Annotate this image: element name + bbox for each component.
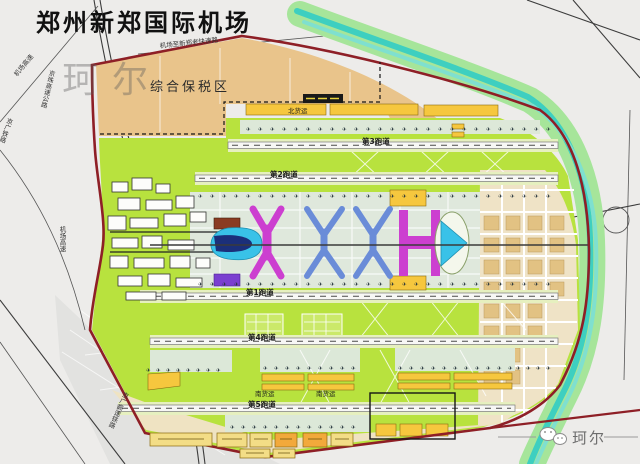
svg-text:✈: ✈ [176, 367, 181, 374]
svg-text:✈: ✈ [498, 193, 503, 200]
svg-text:✈: ✈ [453, 365, 458, 372]
svg-text:✈: ✈ [234, 281, 239, 288]
svg-text:✈: ✈ [274, 365, 279, 372]
svg-text:✈: ✈ [426, 126, 431, 133]
svg-text:✈: ✈ [486, 193, 491, 200]
svg-text:✈: ✈ [210, 281, 215, 288]
svg-text:✈: ✈ [450, 193, 455, 200]
svg-text:✈: ✈ [475, 365, 480, 372]
north-cargo-label: 北货运 [288, 106, 308, 115]
svg-text:✈: ✈ [318, 126, 323, 133]
airport-master-plan-map: 郑州新郑国际机场 珂尔 综合保税区 北货运 第3跑道 第2跑道 第1跑道 第4跑… [0, 0, 640, 464]
svg-text:✈: ✈ [241, 424, 246, 431]
svg-text:✈: ✈ [474, 193, 479, 200]
svg-text:✈: ✈ [486, 365, 491, 372]
svg-text:✈: ✈ [196, 367, 201, 374]
svg-text:✈: ✈ [216, 367, 221, 374]
svg-text:✈: ✈ [296, 365, 301, 372]
runway4-label: 第4跑道 [248, 332, 276, 342]
svg-text:✈: ✈ [306, 281, 311, 288]
svg-text:✈: ✈ [246, 126, 251, 133]
svg-text:✈: ✈ [329, 424, 334, 431]
svg-text:✈: ✈ [546, 281, 551, 288]
svg-text:✈: ✈ [340, 365, 345, 372]
svg-text:✈: ✈ [351, 365, 356, 372]
svg-text:✈: ✈ [486, 126, 491, 133]
south-cargo-label-1: 南货运 [255, 389, 275, 398]
svg-text:✈: ✈ [462, 281, 467, 288]
svg-text:✈: ✈ [351, 424, 356, 431]
svg-text:✈: ✈ [306, 193, 311, 200]
svg-text:✈: ✈ [510, 281, 515, 288]
svg-text:✈: ✈ [198, 281, 203, 288]
runway5-label: 第5跑道 [248, 399, 276, 409]
svg-text:✈: ✈ [296, 424, 301, 431]
svg-text:✈: ✈ [294, 126, 299, 133]
svg-text:✈: ✈ [402, 126, 407, 133]
svg-text:✈: ✈ [450, 126, 455, 133]
svg-text:✈: ✈ [409, 365, 414, 372]
runway-4 [150, 335, 558, 348]
airport-expwy-w-label: 机场高速 [58, 225, 66, 254]
bonded-zone-label: 综合保税区 [150, 80, 230, 95]
svg-text:✈: ✈ [426, 193, 431, 200]
svg-text:✈: ✈ [270, 193, 275, 200]
svg-text:✈: ✈ [522, 193, 527, 200]
svg-text:✈: ✈ [222, 193, 227, 200]
svg-text:✈: ✈ [546, 193, 551, 200]
svg-text:珂尔: 珂尔 [572, 429, 606, 447]
svg-text:✈: ✈ [534, 193, 539, 200]
svg-text:✈: ✈ [282, 193, 287, 200]
svg-text:✈: ✈ [294, 281, 299, 288]
svg-text:✈: ✈ [258, 281, 263, 288]
svg-text:✈: ✈ [222, 281, 227, 288]
svg-text:✈: ✈ [330, 126, 335, 133]
svg-text:✈: ✈ [340, 424, 345, 431]
svg-text:✈: ✈ [462, 126, 467, 133]
svg-text:✈: ✈ [166, 367, 171, 374]
svg-text:✈: ✈ [438, 193, 443, 200]
svg-text:✈: ✈ [282, 281, 287, 288]
runway2-label: 第2跑道 [270, 169, 298, 179]
south-cargo-label-2: 南货运 [316, 389, 336, 398]
svg-text:✈: ✈ [390, 193, 395, 200]
watermark-topleft: 珂尔 [62, 60, 162, 101]
svg-text:✈: ✈ [438, 281, 443, 288]
svg-text:✈: ✈ [534, 281, 539, 288]
svg-text:✈: ✈ [508, 365, 513, 372]
svg-text:✈: ✈ [366, 126, 371, 133]
svg-text:✈: ✈ [366, 281, 371, 288]
svg-text:✈: ✈ [318, 281, 323, 288]
runway-2 [195, 172, 558, 185]
svg-text:✈: ✈ [414, 126, 419, 133]
svg-text:✈: ✈ [258, 193, 263, 200]
svg-text:✈: ✈ [198, 193, 203, 200]
svg-text:✈: ✈ [230, 424, 235, 431]
svg-text:✈: ✈ [246, 193, 251, 200]
svg-text:✈: ✈ [462, 193, 467, 200]
svg-text:✈: ✈ [318, 193, 323, 200]
runway1-label: 第1跑道 [246, 287, 274, 297]
svg-text:✈: ✈ [414, 281, 419, 288]
map-title: 郑州新郑国际机场 [36, 9, 252, 37]
svg-text:✈: ✈ [450, 281, 455, 288]
svg-text:✈: ✈ [516, 365, 521, 372]
svg-text:✈: ✈ [146, 367, 151, 374]
svg-text:✈: ✈ [546, 126, 551, 133]
svg-text:✈: ✈ [366, 193, 371, 200]
runway-3 [228, 139, 558, 152]
svg-text:✈: ✈ [390, 281, 395, 288]
runway-1 [140, 290, 558, 303]
svg-text:✈: ✈ [534, 126, 539, 133]
svg-text:✈: ✈ [342, 281, 347, 288]
svg-text:✈: ✈ [342, 126, 347, 133]
svg-text:✈: ✈ [402, 281, 407, 288]
map-canvas: 郑州新郑国际机场 珂尔 综合保税区 北货运 第3跑道 第2跑道 第1跑道 第4跑… [0, 0, 640, 464]
svg-text:✈: ✈ [318, 424, 323, 431]
svg-text:✈: ✈ [438, 126, 443, 133]
svg-text:✈: ✈ [474, 281, 479, 288]
svg-text:✈: ✈ [546, 365, 551, 372]
svg-text:✈: ✈ [285, 365, 290, 372]
svg-text:✈: ✈ [510, 126, 515, 133]
svg-text:✈: ✈ [318, 365, 323, 372]
svg-text:✈: ✈ [330, 193, 335, 200]
svg-text:✈: ✈ [378, 281, 383, 288]
runway3-label: 第3跑道 [362, 136, 390, 146]
svg-text:✈: ✈ [474, 126, 479, 133]
svg-text:✈: ✈ [402, 193, 407, 200]
svg-text:✈: ✈ [498, 281, 503, 288]
svg-text:✈: ✈ [536, 365, 541, 372]
svg-text:✈: ✈ [522, 281, 527, 288]
svg-text:✈: ✈ [234, 193, 239, 200]
svg-text:✈: ✈ [252, 424, 257, 431]
svg-text:✈: ✈ [246, 281, 251, 288]
svg-text:✈: ✈ [206, 367, 211, 374]
svg-text:✈: ✈ [330, 281, 335, 288]
svg-text:✈: ✈ [390, 126, 395, 133]
svg-text:✈: ✈ [431, 365, 436, 372]
svg-text:✈: ✈ [497, 365, 502, 372]
svg-text:✈: ✈ [186, 367, 191, 374]
svg-text:✈: ✈ [414, 193, 419, 200]
svg-text:✈: ✈ [354, 193, 359, 200]
svg-text:✈: ✈ [329, 365, 334, 372]
svg-text:✈: ✈ [156, 367, 161, 374]
svg-text:✈: ✈ [282, 126, 287, 133]
svg-text:✈: ✈ [442, 365, 447, 372]
svg-text:✈: ✈ [263, 424, 268, 431]
svg-text:✈: ✈ [342, 193, 347, 200]
svg-text:✈: ✈ [426, 281, 431, 288]
svg-text:✈: ✈ [263, 365, 268, 372]
svg-text:✈: ✈ [306, 126, 311, 133]
svg-text:✈: ✈ [510, 193, 515, 200]
svg-text:✈: ✈ [378, 193, 383, 200]
svg-text:✈: ✈ [354, 281, 359, 288]
svg-text:✈: ✈ [270, 281, 275, 288]
svg-text:✈: ✈ [274, 424, 279, 431]
svg-text:✈: ✈ [464, 365, 469, 372]
svg-text:✈: ✈ [270, 126, 275, 133]
svg-text:✈: ✈ [398, 365, 403, 372]
svg-text:✈: ✈ [294, 193, 299, 200]
svg-text:✈: ✈ [258, 126, 263, 133]
svg-text:✈: ✈ [307, 424, 312, 431]
svg-text:✈: ✈ [522, 126, 527, 133]
svg-text:✈: ✈ [354, 126, 359, 133]
svg-text:✈: ✈ [526, 365, 531, 372]
svg-text:✈: ✈ [307, 365, 312, 372]
svg-text:✈: ✈ [210, 193, 215, 200]
svg-text:✈: ✈ [486, 281, 491, 288]
svg-text:✈: ✈ [420, 365, 425, 372]
svg-text:✈: ✈ [498, 126, 503, 133]
svg-text:✈: ✈ [285, 424, 290, 431]
svg-text:✈: ✈ [378, 126, 383, 133]
dark-label-badge [303, 94, 343, 103]
